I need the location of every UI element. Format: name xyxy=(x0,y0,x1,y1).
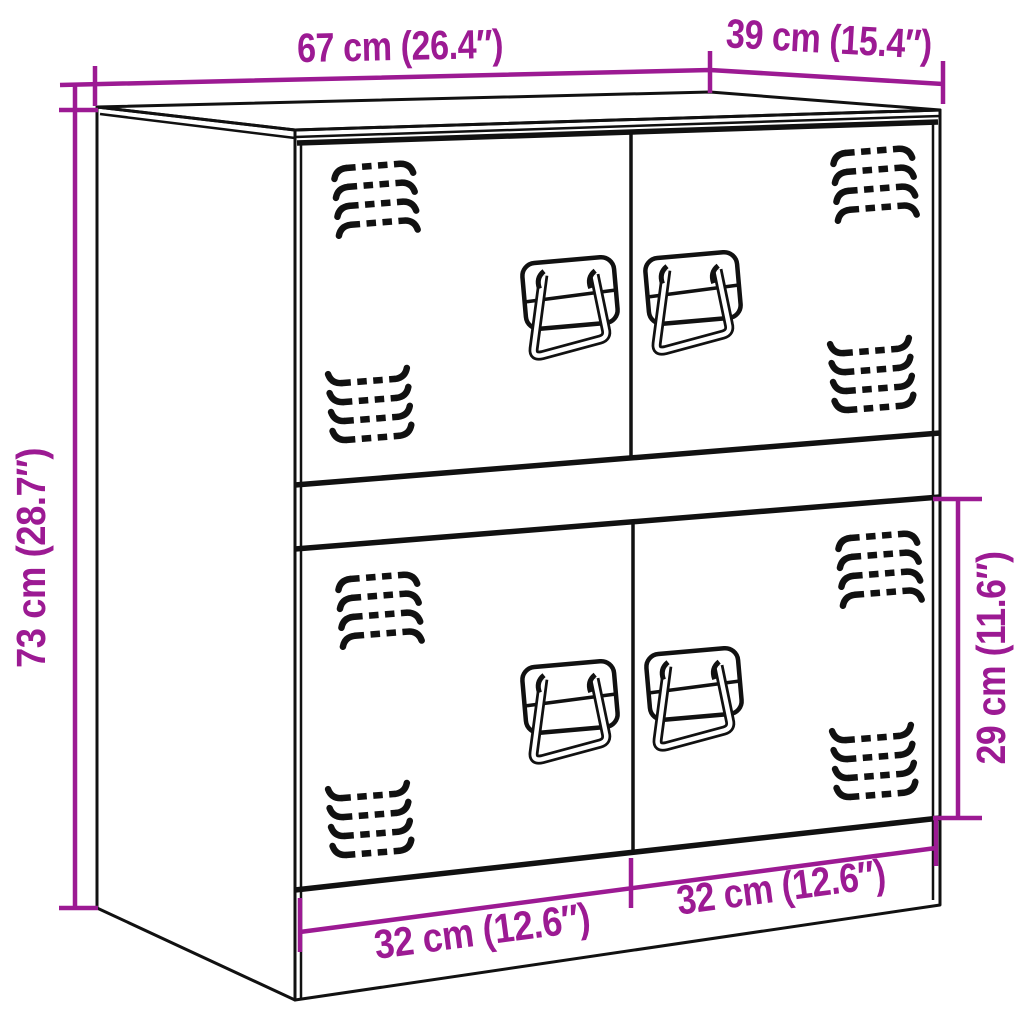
dimension-door-width-left-label: 32 cm (12.6″) xyxy=(371,894,592,968)
middle-band-top-line xyxy=(295,433,940,485)
vent-louvers-bottom-right-door-lower-icon xyxy=(832,725,916,798)
dimension-height-label: 73 cm (28.7″) xyxy=(8,448,54,668)
vent-louvers-bottom-right-door-upper-icon xyxy=(838,533,922,606)
dimension-diagram: 67 cm (26.4″) 39 cm (15.4″) 73 cm (28.7″… xyxy=(0,0,1024,1024)
vent-louvers-bottom-left-door-upper-icon xyxy=(338,574,422,647)
dimension-height-line xyxy=(59,84,98,908)
cabinet-dimension-drawing: 67 cm (26.4″) 39 cm (15.4″) 73 cm (28.7″… xyxy=(0,0,1024,1024)
vent-louvers-top-left-door-upper-icon xyxy=(334,163,418,236)
dimension-door-height-label: 29 cm (11.6″) xyxy=(968,552,1014,765)
dimension-door-width-right-label: 32 cm (12.6″) xyxy=(674,850,888,923)
door-handle-top-left-icon xyxy=(521,256,621,356)
cabinet-left-side-panel xyxy=(97,107,295,1000)
door-handle-bottom-right-icon xyxy=(645,647,745,747)
vent-louvers-top-right-door-upper-icon xyxy=(833,148,917,221)
vent-louvers-bottom-left-door-lower-icon xyxy=(328,783,412,856)
door-handle-top-right-icon xyxy=(644,251,744,351)
vent-louvers-top-right-door-lower-icon xyxy=(830,338,914,411)
dimension-width-label: 67 cm (26.4″) xyxy=(297,21,504,71)
vent-louvers xyxy=(328,148,922,856)
vent-louvers-top-left-door-lower-icon xyxy=(328,368,412,441)
door-handle-bottom-left-icon xyxy=(521,660,621,760)
door-top-frame-line xyxy=(297,122,938,143)
dimension-depth-label: 39 cm (15.4″) xyxy=(725,10,933,67)
